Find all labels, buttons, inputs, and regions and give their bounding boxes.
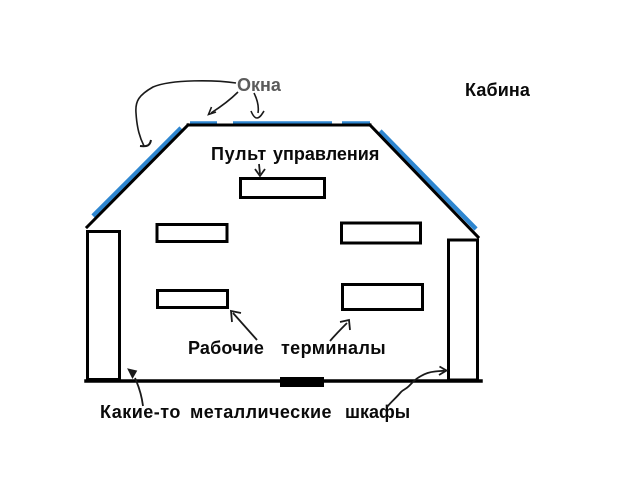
svg-text:металлические: металлические [190,402,332,422]
svg-text:Какие-то: Какие-то [100,402,181,422]
svg-text:Окна: Окна [237,75,282,95]
svg-text:Рабочие: Рабочие [188,338,264,358]
svg-text:терминалы: терминалы [281,338,386,358]
svg-text:управления: управления [273,144,379,164]
svg-text:шкафы: шкафы [345,402,410,422]
svg-text:Кабина: Кабина [465,80,531,100]
svg-text:Пульт: Пульт [211,144,267,164]
